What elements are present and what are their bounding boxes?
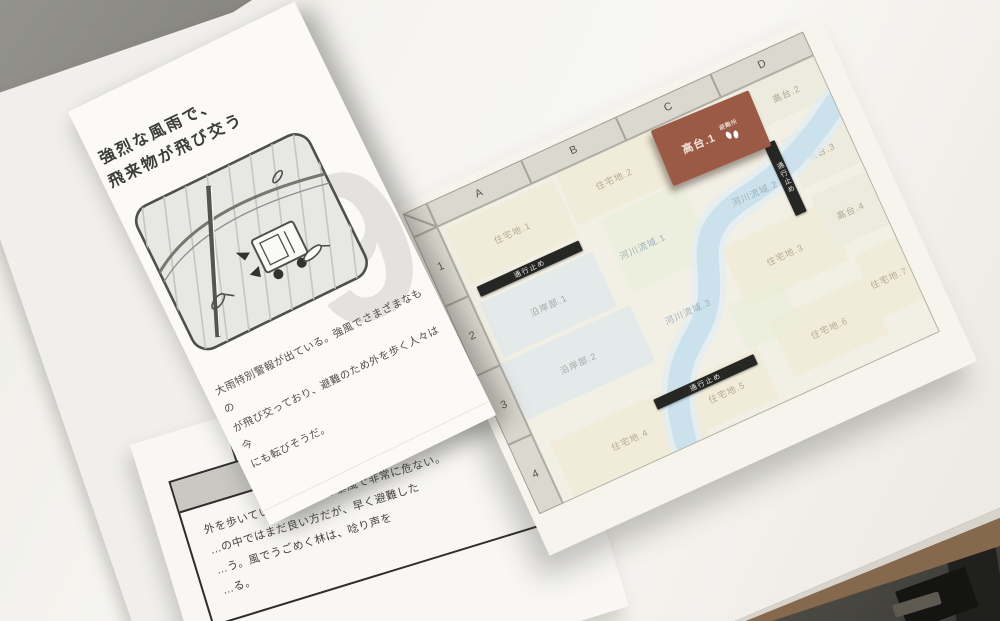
goal-piece-label: 高台.1 — [679, 129, 718, 157]
goal-piece-badge: 避難所 — [717, 116, 743, 144]
photo-scene: 外を歩いていると、足元は暴風で非常に危ない。 …の中ではまだ良い方だが、早く避難… — [0, 0, 1000, 621]
